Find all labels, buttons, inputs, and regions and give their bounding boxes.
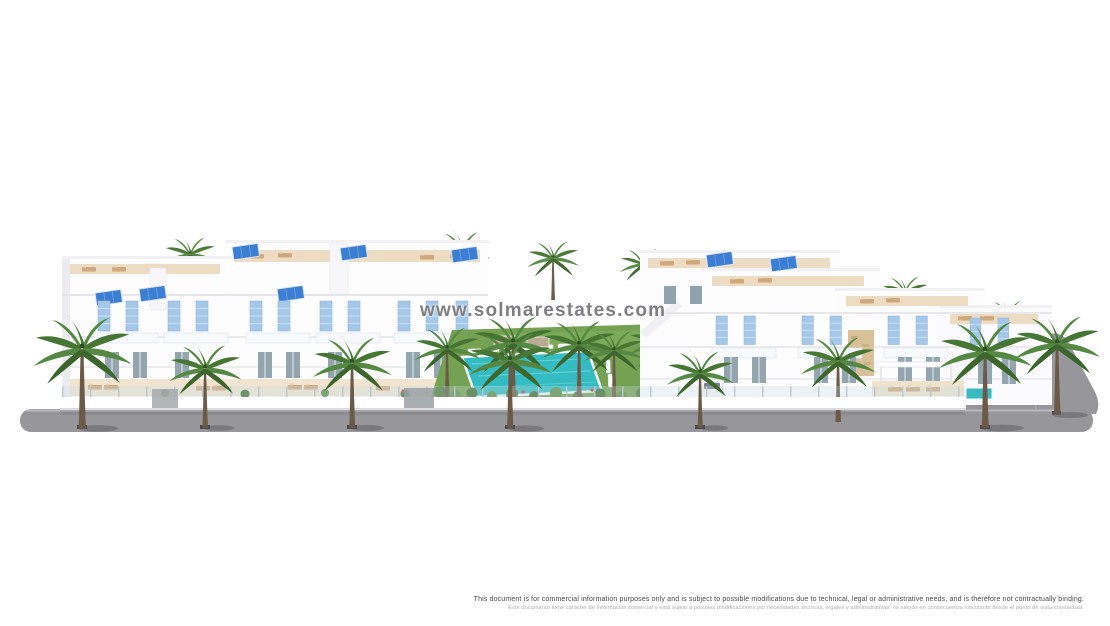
entrance-gate (152, 389, 178, 408)
glass-fence (62, 386, 965, 398)
watermark-url: www.solmarestates.com (420, 300, 666, 322)
disclaimer-text-en: This document is for commercial informat… (474, 595, 1084, 604)
entrance-gate (404, 388, 434, 408)
disclaimer-text-es: Este documento tiene carácter de informa… (474, 605, 1084, 613)
disclaimer: This document is for commercial informat… (474, 595, 1084, 613)
private-pool (966, 388, 992, 399)
boundary-wall (60, 386, 966, 410)
palm-tree (528, 240, 579, 301)
architectural-render-page: www.solmarestates.com This document is f… (0, 0, 1110, 626)
